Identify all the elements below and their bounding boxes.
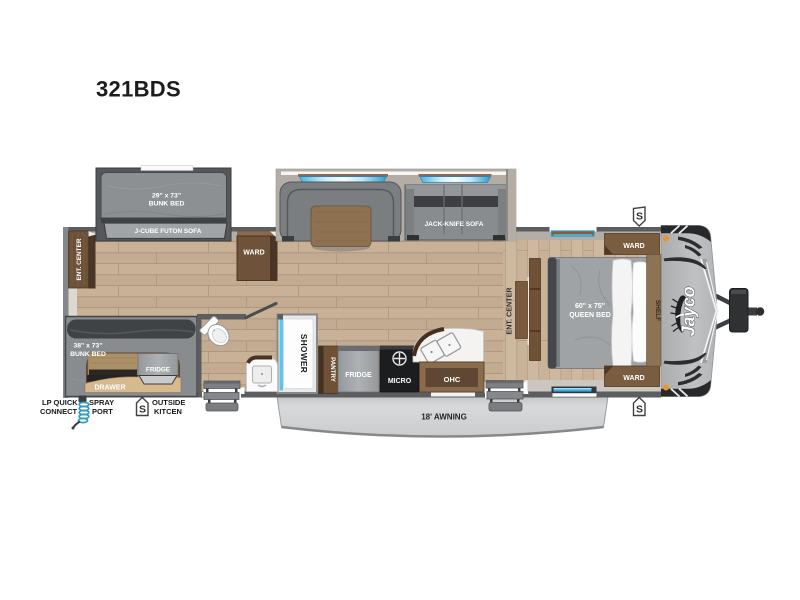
svg-text:MICRO: MICRO bbox=[388, 378, 412, 385]
svg-text:BUNK BED: BUNK BED bbox=[149, 201, 185, 208]
svg-text:J-CUBE FUTON SOFA: J-CUBE FUTON SOFA bbox=[135, 228, 202, 235]
svg-text:18' AWNING: 18' AWNING bbox=[421, 413, 467, 422]
svg-text:SPRAY: SPRAY bbox=[89, 398, 114, 407]
svg-text:JACK-KNIFE SOFA: JACK-KNIFE SOFA bbox=[425, 221, 484, 228]
svg-text:DRAWER: DRAWER bbox=[94, 385, 125, 392]
svg-text:SHOWER: SHOWER bbox=[299, 334, 308, 373]
svg-text:ENT. CENTER: ENT. CENTER bbox=[76, 238, 83, 280]
svg-text:WARD: WARD bbox=[243, 250, 264, 257]
svg-text:321BDS: 321BDS bbox=[96, 77, 181, 102]
svg-text:PANTRY: PANTRY bbox=[329, 357, 336, 383]
svg-text:OHC: OHC bbox=[444, 375, 461, 384]
svg-text:S: S bbox=[636, 404, 643, 416]
svg-text:S: S bbox=[636, 211, 643, 223]
svg-text:PORT: PORT bbox=[92, 407, 113, 416]
svg-text:LP QUICK: LP QUICK bbox=[42, 398, 78, 407]
svg-text:WARD: WARD bbox=[623, 243, 644, 250]
svg-text:60" x 75": 60" x 75" bbox=[575, 303, 605, 310]
svg-text:QUEEN BED: QUEEN BED bbox=[569, 312, 611, 319]
svg-text:SHELF: SHELF bbox=[654, 300, 661, 321]
svg-text:FRIDGE: FRIDGE bbox=[345, 372, 372, 379]
svg-text:KITCEN: KITCEN bbox=[154, 407, 182, 416]
svg-text:WARD: WARD bbox=[623, 375, 644, 382]
svg-text:Jayco: Jayco bbox=[679, 286, 699, 336]
svg-text:29" x 73": 29" x 73" bbox=[152, 193, 181, 200]
svg-text:OUTSIDE: OUTSIDE bbox=[152, 398, 185, 407]
svg-text:CONNECT: CONNECT bbox=[40, 407, 78, 416]
svg-text:ENT. CENTER: ENT. CENTER bbox=[505, 287, 514, 335]
svg-text:BUNK BED: BUNK BED bbox=[70, 351, 106, 358]
svg-text:FRIDGE: FRIDGE bbox=[146, 367, 171, 374]
svg-text:S: S bbox=[139, 404, 146, 416]
svg-text:38" x 73": 38" x 73" bbox=[73, 343, 102, 350]
